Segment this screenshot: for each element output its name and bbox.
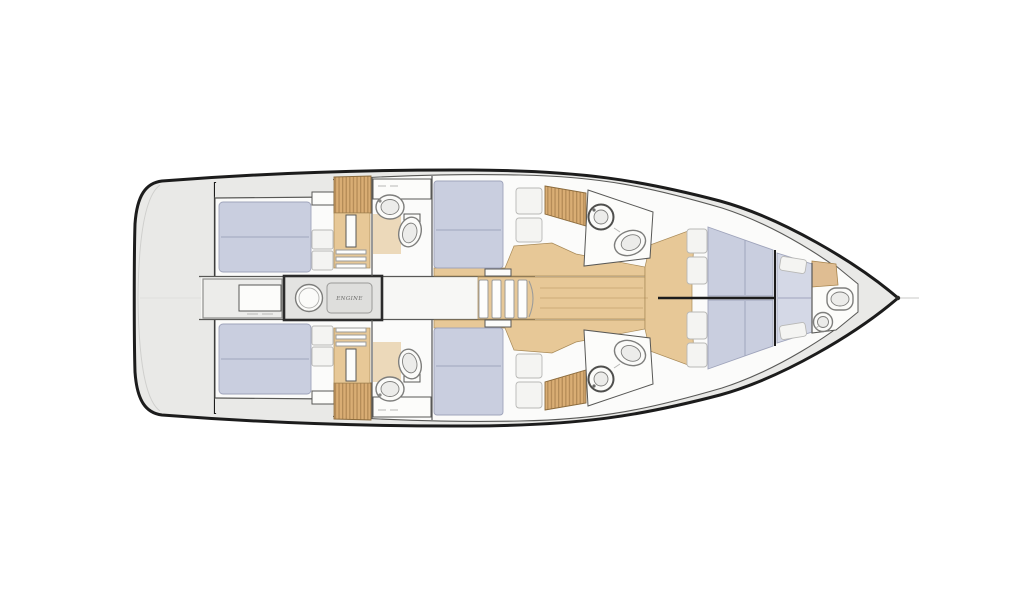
pillow [687, 312, 707, 339]
cabinet [485, 320, 511, 327]
pillow [687, 343, 707, 367]
yacht-deck-plan: ENGINE [0, 0, 1024, 600]
vanity-counter [373, 397, 431, 417]
cabinet [312, 192, 334, 205]
engine-label: ENGINE [335, 296, 363, 302]
bow-fitting [896, 296, 900, 300]
pillow [516, 188, 542, 214]
vanity-counter [373, 179, 431, 199]
pillow [516, 354, 542, 378]
aft-cabin-starboard [219, 192, 334, 272]
galley-counter [203, 279, 282, 318]
pillow [312, 230, 333, 249]
pillar [346, 215, 356, 247]
pillow [687, 257, 707, 284]
bow-vberth [777, 253, 812, 343]
pillow [516, 218, 542, 242]
cockpit-steps-starboard [334, 176, 371, 268]
counter-hatch [239, 285, 281, 311]
bed-mattress [434, 328, 503, 415]
companionway-stairs [479, 280, 533, 318]
slatted-hatch [334, 176, 371, 213]
pillow [516, 382, 542, 408]
engine-room: ENGINE [284, 276, 382, 320]
slatted-hatch [334, 383, 371, 420]
bow-counter [812, 261, 838, 287]
bed-mattress [434, 181, 503, 268]
pillow [312, 347, 333, 366]
cabinet [312, 391, 334, 404]
pillow [312, 251, 333, 270]
aft-cabin-port [219, 324, 334, 404]
pillow [312, 326, 333, 345]
pillar [346, 349, 356, 381]
cockpit-steps-port [334, 328, 371, 420]
cabinet [485, 269, 511, 276]
deck-plan-canvas: ENGINE [0, 0, 1024, 600]
pillow [687, 229, 707, 253]
washing-machine-icon [296, 285, 323, 312]
